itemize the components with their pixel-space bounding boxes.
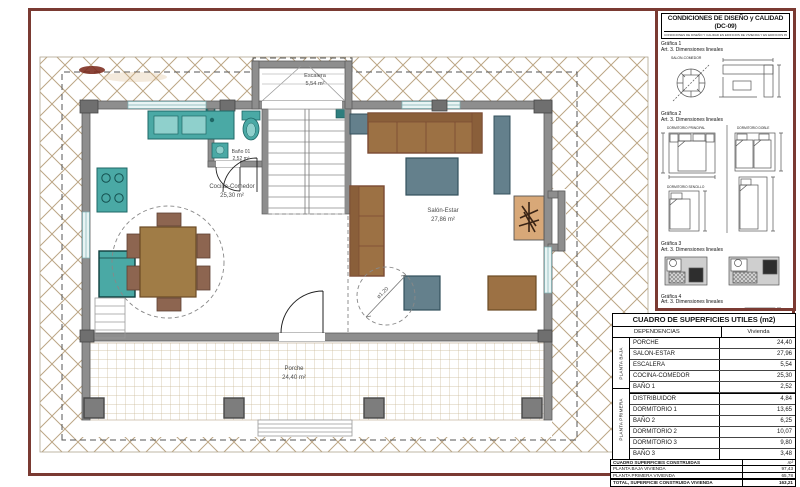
built-surfaces-table: CUADRO SUPERFICIES CONSTRUIDAS m² PLANTA… bbox=[610, 459, 796, 487]
grafica2-cap-sencillo: DORMITORIO SENCILLO bbox=[667, 185, 705, 189]
table-row: DORMITORIO 39,80 bbox=[630, 438, 795, 449]
dc09-title: CONDICIONES DE DISEÑO y CALIDAD (DC-09) bbox=[664, 15, 787, 30]
built-total-row: TOTAL, SUPERFICIE CONSTRUIDA VIVIENDA 16… bbox=[611, 479, 795, 485]
dc09-panel: CONDICIONES DE DISEÑO y CALIDAD (DC-09) … bbox=[655, 8, 796, 311]
grafica2-diagram: DORMITORIO PRINCIPAL DORMITORIO DOBLE bbox=[661, 123, 793, 235]
col-vivienda: Vivienda bbox=[721, 327, 795, 337]
grafica4-diagram bbox=[661, 306, 793, 311]
grafica2-cap-doble: DORMITORIO DOBLE bbox=[737, 126, 769, 130]
built-table-unit: m² bbox=[742, 460, 795, 465]
useful-table-header: DEPENDENCIAS Vivienda bbox=[613, 327, 795, 338]
dc09-grafica-1: Gráfica 1 Art. 3. Dimensiones lineales S… bbox=[661, 42, 790, 110]
table-row: PORCHE24,40 bbox=[630, 338, 795, 349]
dc09-subtitle: CONDICIONES DE DISEÑO Y CALIDAD EN EDIFI… bbox=[664, 31, 787, 37]
floor-label-column: PLANTA BAJA PLANTA PRIMERA bbox=[613, 338, 630, 459]
table-row: ESCALERA5,54 bbox=[630, 360, 795, 371]
table-row: COCINA-COMEDOR25,30 bbox=[630, 371, 795, 382]
table-row: DORMITORIO 113,65 bbox=[630, 405, 795, 416]
table-row: DORMITORIO 210,07 bbox=[630, 427, 795, 438]
grafica1-diagram: SALON-COMEDOR bbox=[661, 53, 793, 105]
col-dependencias: DEPENDENCIAS bbox=[613, 327, 721, 337]
built-table-title: CUADRO SUPERFICIES CONSTRUIDAS bbox=[611, 460, 742, 465]
grafica1-caption: SALON-COMEDOR bbox=[671, 56, 702, 60]
table-row: BAÑO 26,25 bbox=[630, 416, 795, 427]
grafica2-cap-principal: DORMITORIO PRINCIPAL bbox=[667, 126, 705, 130]
built-total-value: 163,21 bbox=[742, 480, 795, 485]
planta-primera-label: PLANTA PRIMERA bbox=[613, 388, 629, 449]
built-total-label: TOTAL, SUPERFICIE CONSTRUIDA VIVIENDA bbox=[611, 480, 742, 485]
table-row: DISTRIBUIDOR4,84 bbox=[630, 393, 795, 405]
useful-surfaces-table: CUADRO DE SUPERFICIES UTILES (m2) DEPEND… bbox=[612, 313, 796, 473]
table-row: BAÑO 12,52 bbox=[630, 382, 795, 393]
dc09-title-box: CONDICIONES DE DISEÑO y CALIDAD (DC-09) … bbox=[661, 13, 790, 39]
dc09-grafica-3: Gráfica 3 Art. 3. Dimensiones lineales bbox=[661, 242, 790, 292]
dc09-grafica-4: Gráfica 4 Art. 3. Dimensiones lineales bbox=[661, 295, 790, 311]
planta-baja-label: PLANTA BAJA bbox=[613, 338, 629, 388]
table-row: BAÑO 33,48 bbox=[630, 449, 795, 459]
useful-table-title: CUADRO DE SUPERFICIES UTILES (m2) bbox=[613, 314, 795, 327]
table-row: SALON-ESTAR27,96 bbox=[630, 349, 795, 360]
dc09-grafica-2: Gráfica 2 Art. 3. Dimensiones lineales D… bbox=[661, 112, 790, 240]
grafica3-diagram bbox=[661, 254, 793, 288]
